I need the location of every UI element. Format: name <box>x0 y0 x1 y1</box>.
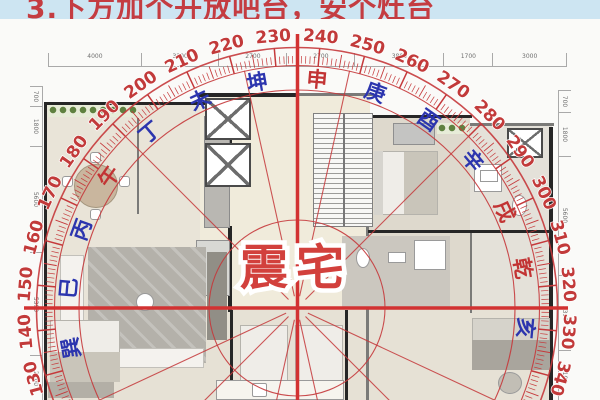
dining-chair <box>90 152 101 163</box>
sink-icon <box>388 252 406 263</box>
elevator-shaft-icon <box>205 98 251 140</box>
shower <box>414 240 446 270</box>
bed-headboard <box>374 151 383 215</box>
dimension-value: 2100 <box>559 350 571 400</box>
compass-tick <box>389 74 392 81</box>
dimension-line-right: 7001800560033902100 <box>558 90 571 400</box>
dimension-value: 5600 <box>559 156 571 275</box>
wall <box>345 310 348 400</box>
compass-tick <box>163 94 167 100</box>
dimension-value: 3800 <box>354 53 443 66</box>
dimension-value: 2700 <box>286 53 354 66</box>
balcony-bottom <box>216 380 344 400</box>
compass-tick <box>187 72 195 88</box>
dining-chair <box>119 176 130 187</box>
compass-tick <box>187 82 190 89</box>
sink-icon <box>480 170 498 182</box>
dimension-value: 2100 <box>30 355 42 400</box>
washer-icon <box>252 383 267 397</box>
compass-tick <box>419 85 426 96</box>
compass-tick <box>408 83 411 90</box>
compass-tick <box>436 95 446 110</box>
compass-tick <box>404 82 407 89</box>
dimension-value: 1800 <box>30 106 42 146</box>
compass-tick <box>373 68 375 75</box>
mountain-char: 申 <box>305 67 328 93</box>
compass-tick <box>444 107 449 113</box>
wall <box>198 93 298 97</box>
wall <box>368 230 552 233</box>
compass-tick <box>441 104 445 110</box>
compass-tick <box>412 85 416 92</box>
bed <box>295 325 343 385</box>
caption-text: 3.下方加个开放吧台，安个灶台 <box>26 0 435 19</box>
compass-tick <box>368 67 370 74</box>
toilet-icon <box>512 195 527 216</box>
degree-label: 200 <box>121 67 162 104</box>
wall <box>470 123 554 126</box>
compass-tick <box>396 78 399 85</box>
dimension-line-top: 4000320027002700380017003000 <box>48 53 567 67</box>
compass-tick <box>169 85 176 96</box>
wall <box>296 93 374 96</box>
compass-tick <box>223 67 225 74</box>
compass-tick <box>215 70 217 77</box>
compass-tick <box>377 70 379 77</box>
bed-blanket <box>472 340 550 370</box>
wall <box>44 102 47 400</box>
dining-chair <box>90 209 101 220</box>
desk <box>393 123 435 145</box>
dimension-value: 3000 <box>492 53 566 66</box>
elevator-shaft-icon <box>205 143 251 187</box>
dimension-line-left: 7001800560053902100 <box>30 86 43 400</box>
dimension-value: 5600 <box>30 146 42 252</box>
dimension-value: 2700 <box>218 53 286 66</box>
compass-tick <box>430 97 434 103</box>
bed-blanket <box>50 352 120 382</box>
degree-label: 240 <box>302 26 339 49</box>
bedroom-rug <box>498 372 522 394</box>
dimension-value: 3200 <box>141 53 219 66</box>
dimension-value: 5390 <box>30 252 42 355</box>
compass-tick <box>207 73 210 80</box>
elevator-shaft-icon <box>507 128 543 158</box>
compass-tick <box>434 99 438 105</box>
bed-blanket <box>404 152 437 214</box>
balcony-plants-right <box>437 123 469 134</box>
compass-tick <box>423 92 427 98</box>
compass-tick <box>416 88 420 95</box>
bed <box>240 325 288 385</box>
dimension-value: 700 <box>30 86 42 106</box>
caption-bar: 3.下方加个开放吧台，安个灶台 <box>0 0 600 19</box>
compass-tick <box>219 68 221 75</box>
staircase <box>313 113 373 227</box>
compass-tick <box>399 72 407 88</box>
compass-tick <box>393 76 396 83</box>
wall <box>137 118 139 214</box>
tv-unit <box>207 252 227 340</box>
screenshot-canvas: 4000320027002700380017003000 70018005600… <box>0 0 600 400</box>
compass-tick <box>175 88 179 95</box>
dining-table <box>74 164 118 208</box>
dining-chair <box>62 176 73 187</box>
dimension-value: 1700 <box>443 53 492 66</box>
degree-label: 270 <box>433 67 474 104</box>
wall <box>470 233 472 313</box>
wall <box>368 115 472 118</box>
balcony-plants-left <box>48 105 137 117</box>
compass-tick <box>199 76 202 83</box>
dimension-value: 700 <box>559 90 571 112</box>
compass-tick <box>380 66 384 78</box>
dimension-value: 4000 <box>48 53 141 66</box>
dimension-value: 1800 <box>559 112 571 156</box>
compass-tick <box>209 66 213 78</box>
degree-label: 230 <box>255 26 292 49</box>
coffee-table <box>136 293 154 311</box>
wardrobe <box>48 382 114 398</box>
toilet-icon <box>356 248 370 268</box>
compass-tick <box>179 85 183 92</box>
compass-tick <box>385 73 388 80</box>
compass-tick <box>195 78 198 85</box>
dimension-value: 3390 <box>559 275 571 350</box>
compass-tick <box>167 92 171 98</box>
compass-tick <box>427 94 431 100</box>
compass-tick <box>203 74 206 81</box>
compass-tick <box>183 83 186 90</box>
